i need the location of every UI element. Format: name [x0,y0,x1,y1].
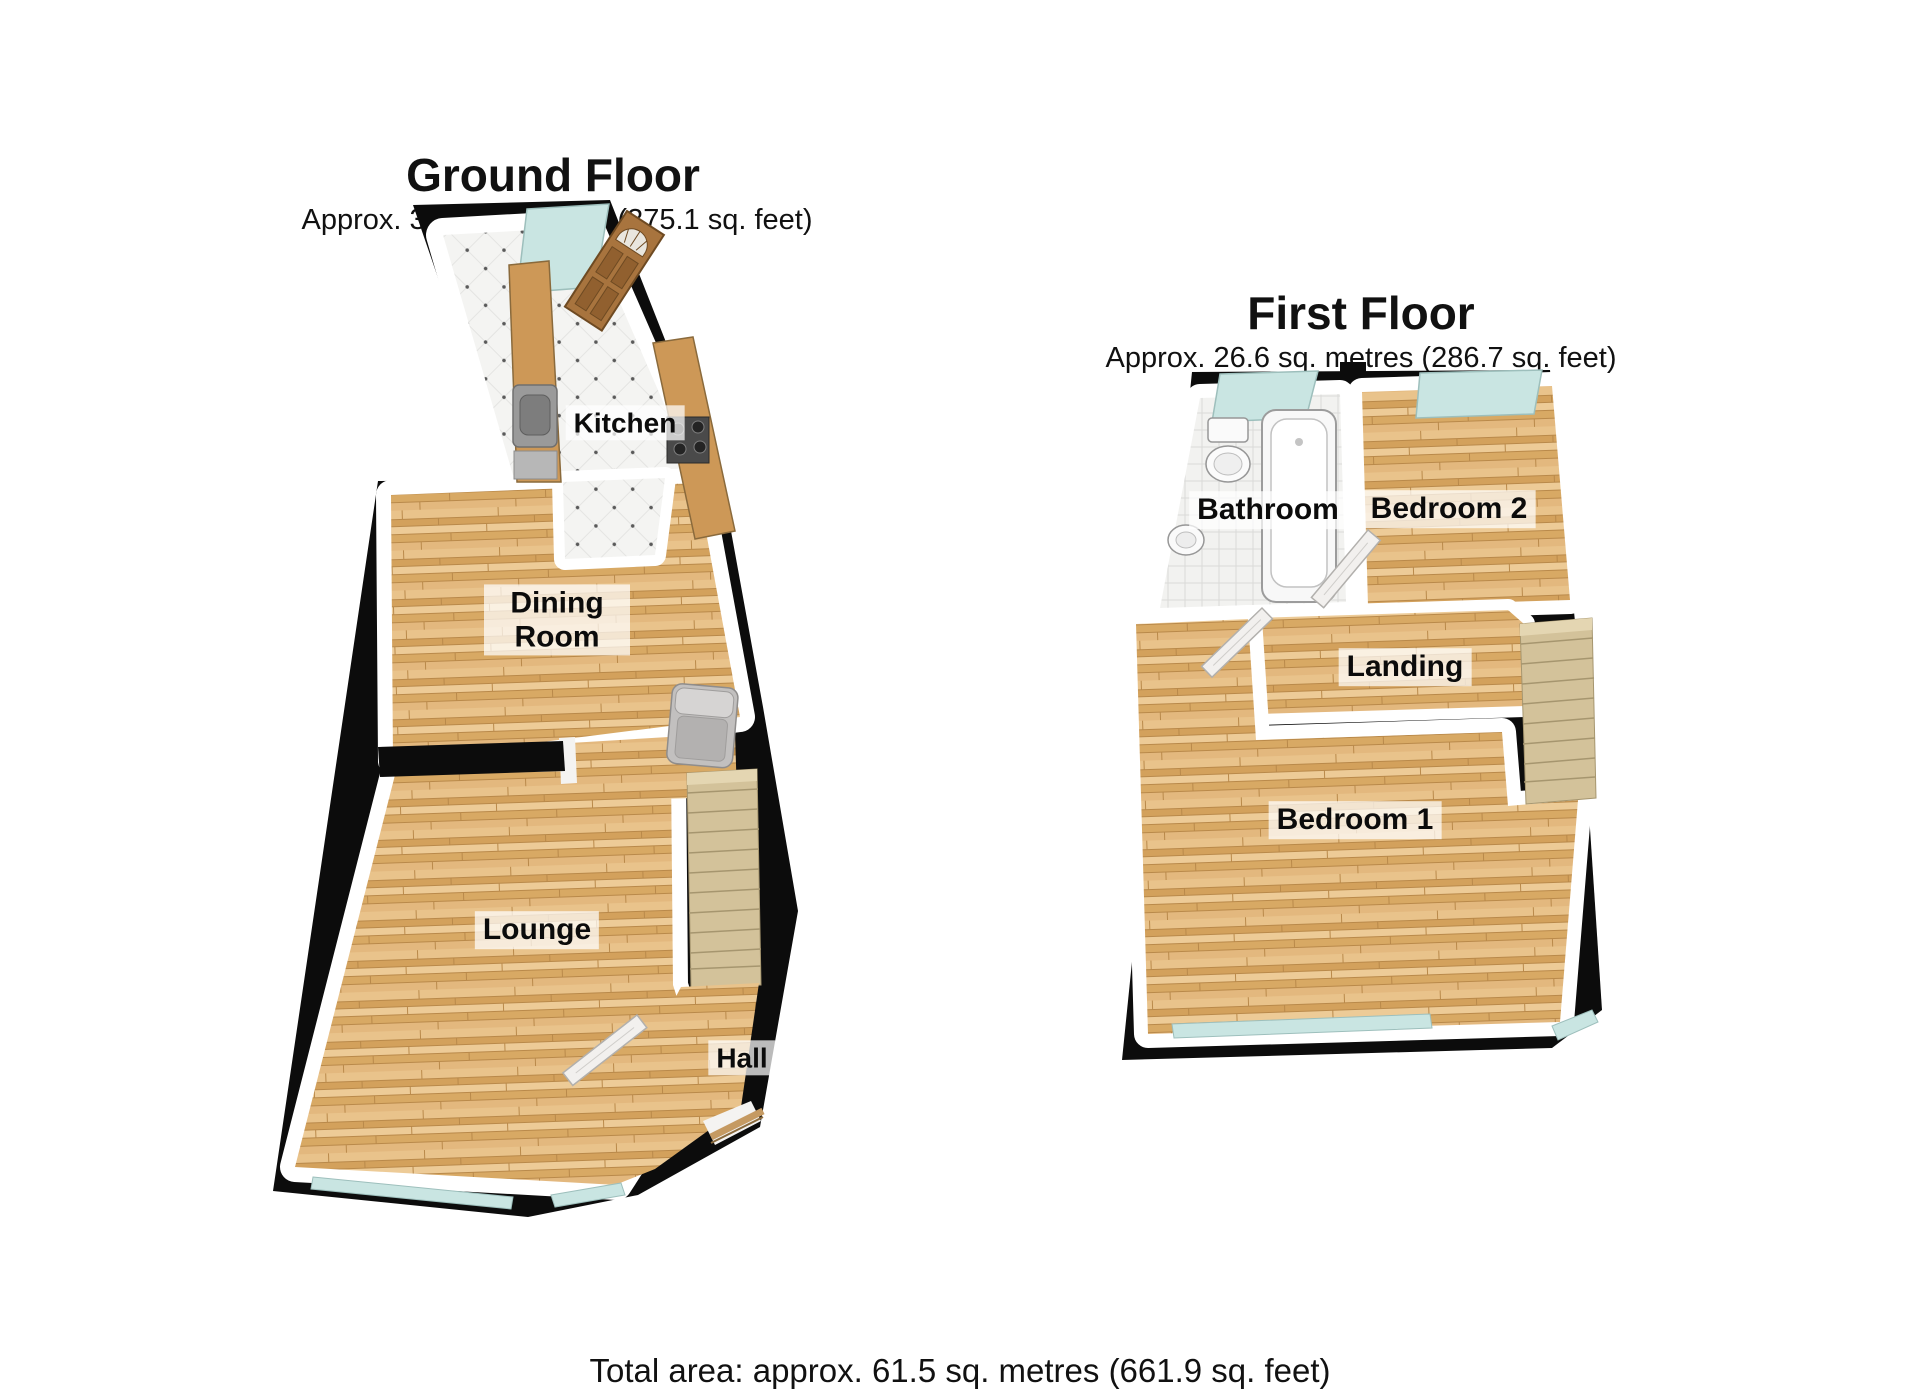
room-label-bedroom2: Bedroom 2 [1363,490,1536,528]
staircase-first [1520,618,1596,804]
kitchen-entry-tile [563,478,665,559]
kitchen-drainer [514,451,557,479]
total-area-text: Total area: approx. 61.5 sq. metres (661… [589,1354,1330,1387]
room-label-bedroom1: Bedroom 1 [1269,801,1442,839]
room-label-landing: Landing [1339,648,1472,686]
top-wall-stub [1340,362,1366,378]
room-label-hall: Hall [708,1040,775,1075]
room-label-bathroom: Bathroom [1189,491,1347,529]
first-floor-title: First Floor [1247,290,1474,336]
ground-floor-title: Ground Floor [406,152,700,198]
bidet [1168,525,1204,555]
room-label-lounge: Lounge [475,911,599,949]
staircase-ground [687,769,761,987]
first-floor-plan [1100,362,1610,1092]
room-label-kitchen: Kitchen [566,405,685,440]
dining-lounge-wall [378,741,565,777]
kitchen-sink-bowl [520,395,550,435]
room-label-dining-room: Dining Room [484,584,630,655]
armchair [666,683,739,768]
bedroom2-window-glass [1416,370,1542,418]
